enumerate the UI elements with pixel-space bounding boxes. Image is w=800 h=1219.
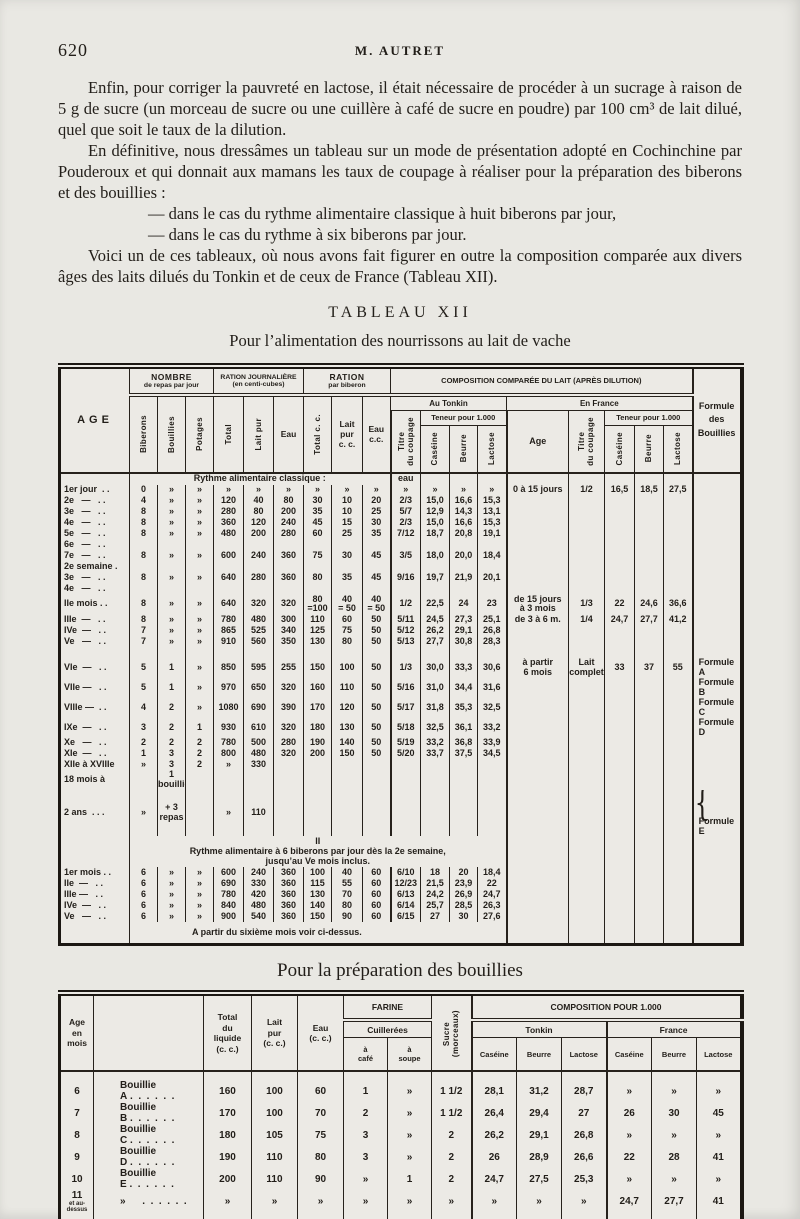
bouillie-name: Bouillie B . . . . . . [94, 1102, 204, 1124]
cell: 5 [130, 678, 158, 698]
cell [478, 790, 507, 836]
cell [363, 647, 391, 658]
cell [664, 647, 693, 658]
cell: » [344, 1190, 388, 1219]
col-header-lactose-tonkin: Lactose [478, 425, 507, 473]
eau-note: eau [391, 473, 421, 485]
cell [332, 647, 363, 658]
cell: » [432, 1190, 472, 1219]
cell [664, 473, 693, 485]
cell: 41 [697, 1146, 742, 1168]
cell: 22 [478, 878, 507, 889]
cell: » [204, 1190, 252, 1219]
cell: » [186, 636, 214, 647]
cell: » [478, 485, 507, 496]
cell [635, 625, 664, 636]
cell: 30,6 [478, 658, 507, 678]
cell [605, 529, 635, 540]
cell [605, 625, 635, 636]
age-label: IIe mois . . [60, 595, 130, 615]
cell [605, 790, 635, 836]
cell: » [652, 1071, 697, 1102]
cell: 330 [244, 878, 274, 889]
age-label: VIIe — . . [60, 678, 130, 698]
cell [274, 562, 304, 573]
cell: 5/18 [391, 718, 421, 738]
formule-cell [693, 889, 742, 900]
age-label: IVe — . . [60, 625, 130, 636]
cell: 1 bouillie [158, 770, 186, 790]
cell [478, 584, 507, 595]
group-subtitle: de repas par jour [130, 382, 213, 389]
cell [664, 698, 693, 718]
cell [569, 790, 605, 836]
col-header-eau: Eau (c. c.) [298, 993, 344, 1071]
feeding-table: AGE NOMBRE de repas par jour RATION JOUR… [58, 363, 744, 947]
cell: 280 [274, 737, 304, 748]
cell [450, 759, 478, 770]
cell: 80 [274, 496, 304, 507]
bouillies-table-header: Age en mois Total du liquide (c. c.) Lai… [60, 993, 742, 1071]
cell: » [652, 1124, 697, 1146]
scanned-paper-page: 620 M. AUTRET Enfin, pour corriger la pa… [0, 0, 800, 1219]
cell: 6/15 [391, 911, 421, 922]
cell: 4 [130, 698, 158, 718]
cell: » [158, 507, 186, 518]
cell: 29,1 [450, 625, 478, 636]
cell: 3 [158, 748, 186, 759]
cell [332, 584, 363, 595]
cell [391, 584, 421, 595]
cell: 30 [304, 496, 332, 507]
france-age [507, 718, 569, 738]
cell: 130 [304, 636, 332, 647]
cell: 36,6 [664, 595, 693, 615]
cell [605, 878, 635, 889]
cell [569, 718, 605, 738]
teneur-label-france: Teneur pour 1.000 [605, 410, 693, 425]
col-header-titre-coupage-france: Titre du coupage [569, 410, 605, 473]
cell: 36,1 [450, 718, 478, 738]
section1-heading-row: Rythme alimentaire classique :eau [60, 473, 742, 485]
cell: 25,3 [562, 1168, 607, 1190]
cell: 7 [130, 636, 158, 647]
cell: 190 [304, 737, 332, 748]
cell [605, 922, 635, 945]
cell: 2 [158, 737, 186, 748]
cell: » [186, 496, 214, 507]
cell [478, 562, 507, 573]
cell [635, 867, 664, 878]
cell: » [214, 759, 244, 770]
cell [186, 770, 214, 790]
cell [450, 647, 478, 658]
cell: 30 [652, 1102, 697, 1124]
cell: 110 [244, 790, 274, 836]
cell [605, 507, 635, 518]
table-row: IIe mois . .8»»64032032080 =10040 = 5040… [60, 595, 742, 615]
cell: 50 [363, 748, 391, 759]
cell [363, 759, 391, 770]
cell: » [158, 614, 186, 625]
cell [664, 496, 693, 507]
cell: 80 [332, 900, 363, 911]
col-header-caseine-france: Caséine [605, 425, 635, 473]
cell: 30,8 [450, 636, 478, 647]
cell: 22,5 [421, 595, 450, 615]
cell: 15,3 [478, 518, 507, 529]
cell [130, 647, 158, 658]
cell: 27 [421, 911, 450, 922]
cell: 29,4 [517, 1102, 562, 1124]
cell: 140 [332, 737, 363, 748]
col-header-biberons: Biberons [130, 395, 158, 473]
cell: 27,7 [635, 614, 664, 625]
formule-cell [693, 614, 742, 625]
cell [605, 636, 635, 647]
cell [569, 584, 605, 595]
cell: 850 [214, 658, 244, 678]
cell: 24,7 [607, 1190, 652, 1219]
cell: » [697, 1168, 742, 1190]
france-age [507, 573, 569, 584]
cell [664, 847, 693, 867]
table-row: 1er jour . .0»»»»»»»»»»»»0 à 15 jours1/2… [60, 485, 742, 496]
cell [664, 790, 693, 836]
cell [450, 770, 478, 790]
header-row-groups: Age en mois Total du liquide (c. c.) Lai… [60, 993, 742, 1020]
cell: 50 [363, 678, 391, 698]
cell: 6/14 [391, 900, 421, 911]
cell: » [332, 485, 363, 496]
brace-glyph: { [695, 790, 710, 823]
cell: 1 1/2 [432, 1071, 472, 1102]
cell [363, 540, 391, 551]
age-label [60, 922, 130, 945]
cell: 6 [130, 911, 158, 922]
cell [214, 647, 244, 658]
france-age [507, 836, 569, 847]
cell [186, 584, 214, 595]
cell: 130 [332, 718, 363, 738]
france-age: 0 à 15 jours [507, 485, 569, 496]
cell: 3/5 [391, 551, 421, 562]
formule-cell [693, 473, 742, 485]
cell: 360 [274, 878, 304, 889]
france-age [507, 496, 569, 507]
formule-cell [693, 573, 742, 584]
cell: 24,5 [421, 614, 450, 625]
cell: 190 [204, 1146, 252, 1168]
cell [635, 790, 664, 836]
cell [605, 889, 635, 900]
cell: 50 [363, 636, 391, 647]
cell [664, 518, 693, 529]
cell [664, 507, 693, 518]
france-age [507, 473, 569, 485]
paragraph-lactose: Enfin, pour corriger la pauvreté en lact… [58, 78, 742, 141]
cell [274, 790, 304, 836]
cell: 24,7 [472, 1168, 517, 1190]
cell: 24,7 [478, 889, 507, 900]
table-row: VIIIe — . .42»1080690390170120505/1731,8… [60, 698, 742, 718]
cell: 160 [204, 1071, 252, 1102]
cell: 1080 [214, 698, 244, 718]
cell: 4 [130, 496, 158, 507]
section1-heading: Rythme alimentaire classique : [130, 473, 391, 485]
group-title: COMPOSITION COMPARÉE DU LAIT (APRÈS DILU… [391, 376, 692, 385]
age-subtext: et au-dessus [61, 1201, 93, 1213]
formule-cell [693, 540, 742, 551]
cell: 360 [214, 518, 244, 529]
cell [363, 790, 391, 836]
cell [304, 647, 332, 658]
cell [569, 540, 605, 551]
paragraph-tableau: En définitive, nous dressâmes un tableau… [58, 141, 742, 204]
cell: 55 [332, 878, 363, 889]
cell [450, 584, 478, 595]
cell: 150 [304, 911, 332, 922]
cell: 595 [244, 658, 274, 678]
cell: 2 [344, 1102, 388, 1124]
feeding-table-header: AGE NOMBRE de repas par jour RATION JOUR… [60, 366, 742, 473]
formule-cell [693, 900, 742, 911]
cell [214, 584, 244, 595]
cell: 540 [244, 911, 274, 922]
formule-cell [693, 636, 742, 647]
cell [214, 770, 244, 790]
formule-cell [693, 625, 742, 636]
cell [635, 562, 664, 573]
cell [363, 584, 391, 595]
col-header-eau: Eau [274, 395, 304, 473]
formule-cell [693, 770, 742, 790]
cell: » [186, 614, 214, 625]
section2-label-row: II [60, 836, 742, 847]
age-label: XIe — . . [60, 748, 130, 759]
cell [421, 790, 450, 836]
col-header-eau-cc: Eau c.c. [363, 395, 391, 473]
cell: 31,6 [478, 678, 507, 698]
cell: 19,1 [478, 529, 507, 540]
cell: » [130, 759, 158, 770]
cell: 35 [304, 507, 332, 518]
formule-cell [693, 922, 742, 945]
cell: 780 [214, 889, 244, 900]
cell: 1 1/2 [432, 1102, 472, 1124]
cell: 910 [214, 636, 244, 647]
col-header-lactose-tonkin: Lactose [562, 1038, 607, 1072]
cell [569, 529, 605, 540]
cell: 120 [244, 518, 274, 529]
cell: 480 [244, 748, 274, 759]
cell: » [697, 1124, 742, 1146]
cell: 200 [274, 507, 304, 518]
cell [664, 573, 693, 584]
cell: » [344, 1168, 388, 1190]
cell: 200 [244, 529, 274, 540]
cell: 110 [252, 1168, 298, 1190]
col-header-total: Total [214, 395, 244, 473]
cell: 330 [244, 759, 274, 770]
table-row: 4e — . .8»»3601202404515302/315,016,615,… [60, 518, 742, 529]
table-row: 7e — . .8»»6002403607530453/518,020,018,… [60, 551, 742, 562]
cell: 200 [204, 1168, 252, 1190]
cell: 30,0 [421, 658, 450, 678]
cell [214, 562, 244, 573]
cell: 115 [304, 878, 332, 889]
cell: 255 [274, 658, 304, 678]
cell: 1/3 [569, 595, 605, 615]
formule-cell: {Formule E [693, 790, 742, 836]
col-group-ration-biberon: RATION par biberon [304, 366, 391, 395]
table-row: IVe — . .7»»86552534012575505/1226,229,1… [60, 625, 742, 636]
cell: 27,5 [664, 485, 693, 496]
cell [664, 636, 693, 647]
cell: 320 [244, 595, 274, 615]
cell: 28,3 [478, 636, 507, 647]
cell: 24,7 [605, 614, 635, 625]
cell [158, 647, 186, 658]
cell [569, 889, 605, 900]
cell: » [158, 900, 186, 911]
formule-cell [693, 507, 742, 518]
col-header-bouillies: Bouillies [158, 395, 186, 473]
cell: 41 [697, 1190, 742, 1219]
cell: 12/23 [391, 878, 421, 889]
cell: » [252, 1190, 298, 1219]
age-label [60, 473, 130, 485]
cell: 22 [607, 1146, 652, 1168]
cell [635, 584, 664, 595]
cell: 1 [158, 658, 186, 678]
age-label: 1er mois . . [60, 867, 130, 878]
cell: 37 [635, 658, 664, 678]
cell: 60 [298, 1071, 344, 1102]
cell: 640 [214, 573, 244, 584]
cell [635, 636, 664, 647]
age-cell: 8 [60, 1124, 94, 1146]
cell: 50 [363, 718, 391, 738]
cell [274, 770, 304, 790]
age-label: 2 ans . . . [60, 790, 130, 836]
cell: 26 [607, 1102, 652, 1124]
cell: 170 [204, 1102, 252, 1124]
cell: 2 [130, 737, 158, 748]
cell [304, 770, 332, 790]
table1-footnote: A partir du sixième mois voir ci-dessus. [130, 922, 507, 945]
cell: 27,7 [421, 636, 450, 647]
cell: 6 [130, 900, 158, 911]
cell: » [158, 878, 186, 889]
table-row: IIe — . .6»»690330360115556012/2321,523,… [60, 878, 742, 889]
cell: 120 [332, 698, 363, 718]
cell: 610 [244, 718, 274, 738]
cell [332, 770, 363, 790]
col-header-a-cafe: à café [344, 1038, 388, 1072]
cell: 6 [130, 867, 158, 878]
cell: 60 [363, 900, 391, 911]
cell: 25 [332, 529, 363, 540]
bouillie-name: » . . . . . . [94, 1190, 204, 1219]
cell [130, 770, 158, 790]
cell: 280 [214, 507, 244, 518]
col-header-lactose-france: Lactose [664, 425, 693, 473]
cell: 18,7 [421, 529, 450, 540]
cell: » [186, 698, 214, 718]
col-group-ration-journaliere: RATION JOURNALIÈRE (en centi-cubes) [214, 366, 304, 395]
cell: 28,5 [450, 900, 478, 911]
cell: 180 [304, 718, 332, 738]
table-row: IVe — . .6»»84048036014080606/1425,728,5… [60, 900, 742, 911]
cell: + 3 repas [158, 790, 186, 836]
cell [664, 770, 693, 790]
cell: » [186, 878, 214, 889]
france-age: de 3 à 6 m. [507, 614, 569, 625]
col-header-caseine-france: Caséine [607, 1038, 652, 1072]
cell: 360 [274, 573, 304, 584]
col-header-beurre-tonkin: Beurre [517, 1038, 562, 1072]
cell [635, 678, 664, 698]
cell [304, 562, 332, 573]
cell: 690 [244, 698, 274, 718]
cell: » [158, 889, 186, 900]
cell [605, 518, 635, 529]
table-row: 9Bouillie D . . . . . .190110803»22628,9… [60, 1146, 742, 1168]
cell: 320 [274, 595, 304, 615]
france-age [507, 551, 569, 562]
cell [569, 836, 605, 847]
cell [635, 878, 664, 889]
cell [605, 540, 635, 551]
cell [186, 790, 214, 836]
cell: 55 [664, 658, 693, 678]
cell: » [562, 1190, 607, 1219]
cell: 640 [214, 595, 244, 615]
formule-cell [693, 836, 742, 847]
cell [332, 790, 363, 836]
cell: 350 [274, 636, 304, 647]
cell: 600 [214, 867, 244, 878]
cell: 40 = 50 [332, 595, 363, 615]
cell: 31,0 [421, 678, 450, 698]
col-header-lactose-france: Lactose [697, 1038, 742, 1072]
france-age [507, 867, 569, 878]
table-row [60, 647, 742, 658]
cell: 320 [274, 748, 304, 759]
cell: 110 [304, 614, 332, 625]
cell [478, 647, 507, 658]
cell: 320 [274, 718, 304, 738]
header-row-subgroups: Biberons Bouillies Potages Total Lait pu… [60, 395, 742, 411]
cell [158, 584, 186, 595]
cell: » [186, 867, 214, 878]
table-row: VIIe — . .51»970650320160110505/1631,034… [60, 678, 742, 698]
group-title: RATION JOURNALIÈRE [214, 374, 303, 381]
cell: 28,7 [562, 1071, 607, 1102]
cell: 25 [363, 507, 391, 518]
cell: 10 [332, 507, 363, 518]
cell: 240 [244, 867, 274, 878]
age-label: Xe — . . [60, 737, 130, 748]
cell: 2 [432, 1168, 472, 1190]
cell [635, 551, 664, 562]
cell: 70 [332, 889, 363, 900]
cell [569, 900, 605, 911]
cell [635, 748, 664, 759]
cell [391, 759, 421, 770]
cell: 60 [363, 878, 391, 889]
